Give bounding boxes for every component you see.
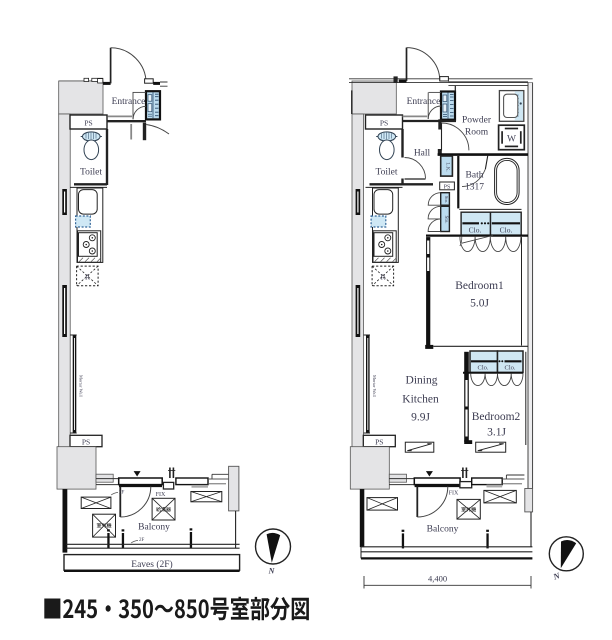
svg-text:Bath: Bath — [466, 171, 484, 181]
svg-text:PS: PS — [444, 184, 451, 190]
svg-text:Kitchen: Kitchen — [402, 394, 439, 406]
svg-text:FIX: FIX — [156, 492, 166, 498]
svg-text:FIX: FIX — [449, 491, 459, 497]
svg-text:Eaves (2F): Eaves (2F) — [131, 559, 172, 570]
svg-text:Clo.: Clo. — [477, 364, 488, 371]
svg-text:1317: 1317 — [465, 183, 484, 193]
svg-text:9.9J: 9.9J — [411, 411, 430, 423]
svg-text:4,400: 4,400 — [428, 574, 447, 584]
svg-text:Balcony: Balcony — [427, 525, 459, 535]
svg-text:2F: 2F — [139, 538, 145, 543]
svg-text:W: W — [507, 134, 516, 144]
svg-text:Room: Room — [465, 128, 489, 138]
svg-text:Bedroom1: Bedroom1 — [455, 280, 504, 292]
svg-text:Bedroom2: Bedroom2 — [472, 411, 521, 423]
svg-text:Clo.: Clo. — [504, 364, 515, 371]
svg-text:5.0J: 5.0J — [470, 298, 489, 310]
svg-text:L.K.: L.K. — [445, 162, 450, 171]
svg-text:Clo.: Clo. — [469, 226, 482, 235]
svg-text:Balcony: Balcony — [138, 523, 170, 533]
svg-text:Hall: Hall — [414, 149, 431, 159]
svg-text:Sto.: Sto. — [444, 196, 449, 203]
svg-text:Entrance: Entrance — [407, 97, 441, 107]
svg-text:Sto.: Sto. — [443, 216, 448, 224]
svg-text:2F: 2F — [119, 491, 125, 496]
svg-text:3.1J: 3.1J — [487, 427, 506, 439]
svg-text:Powder: Powder — [462, 116, 492, 126]
svg-text:Entrance: Entrance — [112, 97, 146, 107]
svg-text:Dining: Dining — [406, 375, 438, 387]
svg-text:Clo.: Clo. — [500, 226, 513, 235]
